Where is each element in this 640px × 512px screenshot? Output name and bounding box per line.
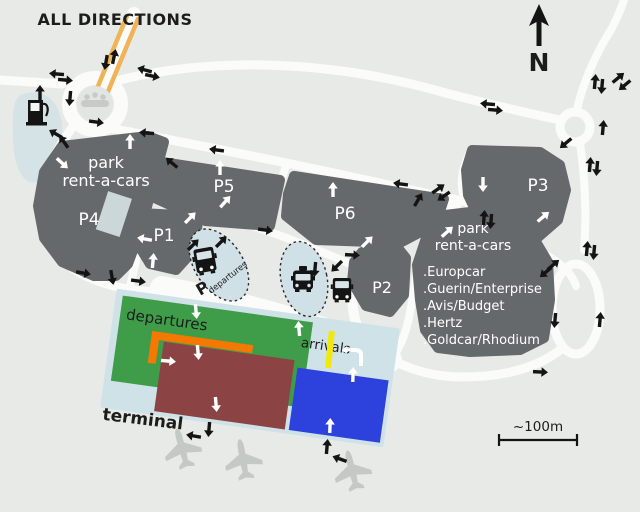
right-park-label-line2: rent-a-cars [435,238,511,254]
p2-label: P2 [372,278,392,297]
p5-label: P5 [213,177,234,197]
page-title: ALL DIRECTIONS [38,10,193,29]
rental-company: .Guerin/Enterprise [423,282,542,297]
rental-company: .Goldcar/Rhodium [423,333,540,348]
scale-label: ~100m [513,419,563,435]
rental-company: .Avis/Budget [423,299,504,314]
north-label: N [529,48,550,77]
p6-label: P6 [334,204,355,224]
rental-company: .Hertz [423,316,462,331]
p1-label: P1 [153,226,174,246]
terminal-blue-wing [289,368,389,443]
left-park-label-line1: park [88,153,125,172]
left-park-label-line2: rent-a-cars [62,171,149,190]
p3-label: P3 [527,176,548,196]
airport-map: park rent-a-cars P4 P1 P5 P6 P3 P2 park … [0,0,640,512]
bus-icon [331,278,353,302]
p4-label: P4 [78,210,99,230]
rental-company: .Europcar [423,265,486,280]
